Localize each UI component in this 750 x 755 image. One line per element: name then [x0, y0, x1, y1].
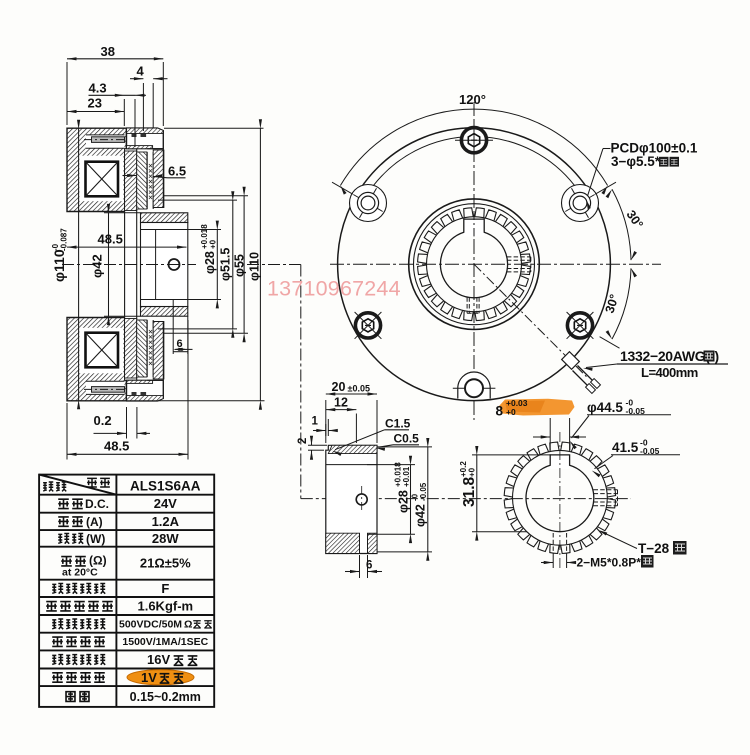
svg-text:1.2A: 1.2A	[152, 514, 180, 529]
svg-text:21Ω±5%: 21Ω±5%	[140, 556, 191, 571]
svg-text:-0.05: -0.05	[419, 482, 428, 501]
svg-text:D.C.: D.C.	[85, 497, 109, 511]
svg-text:(W): (W)	[86, 532, 105, 546]
svg-text:F: F	[161, 581, 169, 596]
svg-text:φ42: φ42	[414, 504, 428, 527]
svg-text:3−φ5.5*: 3−φ5.5*	[611, 154, 661, 169]
svg-text:6: 6	[177, 338, 183, 350]
svg-text:0.15~0.2mm: 0.15~0.2mm	[130, 690, 201, 704]
svg-text:φ110: φ110	[248, 252, 262, 281]
svg-text:Ω: Ω	[184, 618, 192, 630]
svg-text:φ55: φ55	[233, 254, 247, 277]
svg-text:120°: 120°	[459, 92, 486, 107]
svg-text:T−28: T−28	[638, 541, 670, 556]
svg-text:8: 8	[496, 404, 504, 419]
svg-text:48.5: 48.5	[98, 232, 123, 247]
svg-text:16V: 16V	[147, 652, 170, 667]
svg-text:24V: 24V	[154, 496, 177, 511]
svg-text:38: 38	[101, 44, 115, 59]
svg-text:1: 1	[312, 416, 319, 428]
svg-text:28W: 28W	[152, 531, 179, 546]
svg-text:20: 20	[332, 380, 346, 394]
svg-text:ALS1S6AA: ALS1S6AA	[130, 479, 201, 494]
svg-text:(A): (A)	[86, 515, 103, 529]
svg-text:±0.05: ±0.05	[348, 384, 370, 394]
svg-text:C0.5: C0.5	[394, 432, 420, 446]
svg-text:φ42: φ42	[90, 254, 105, 278]
svg-text:4.3: 4.3	[89, 81, 107, 96]
svg-text:0.2: 0.2	[94, 413, 112, 428]
svg-text:at 20°C: at 20°C	[62, 567, 98, 579]
svg-text:φ110: φ110	[51, 249, 67, 282]
svg-text:2: 2	[297, 438, 309, 444]
svg-text:4: 4	[137, 64, 145, 79]
svg-text:41.5: 41.5	[612, 440, 639, 455]
svg-text:+0.01: +0.01	[402, 466, 411, 487]
svg-text:31.8: 31.8	[461, 476, 478, 507]
svg-text:+0: +0	[209, 239, 218, 249]
svg-text:φ44.5: φ44.5	[587, 400, 623, 415]
svg-text:+0: +0	[468, 467, 477, 477]
svg-text:1V: 1V	[141, 670, 157, 685]
svg-text:500VDC/50M: 500VDC/50M	[119, 618, 182, 630]
svg-text:φ28: φ28	[203, 251, 217, 274]
svg-text:12: 12	[334, 396, 348, 410]
svg-text:6: 6	[366, 560, 372, 572]
svg-text:6.5: 6.5	[168, 164, 186, 179]
svg-text:φ51.5: φ51.5	[219, 248, 233, 281]
svg-text:13710967244: 13710967244	[267, 277, 401, 301]
svg-text:2−M5*0.8P*: 2−M5*0.8P*	[577, 556, 642, 570]
svg-text:48.5: 48.5	[104, 439, 129, 454]
svg-text:): )	[715, 348, 720, 364]
svg-text:1332−20AWG(: 1332−20AWG(	[620, 348, 710, 364]
svg-text:φ28: φ28	[397, 490, 411, 513]
svg-text:+0: +0	[506, 407, 516, 417]
svg-text:1.6Kgf-m: 1.6Kgf-m	[137, 599, 193, 614]
svg-text:(Ω): (Ω)	[89, 554, 107, 568]
svg-text:C1.5: C1.5	[385, 417, 411, 431]
svg-text:1500V/1MA/1SEC: 1500V/1MA/1SEC	[122, 636, 208, 648]
svg-text:L=400mm: L=400mm	[641, 365, 698, 380]
svg-text:23: 23	[88, 96, 102, 111]
